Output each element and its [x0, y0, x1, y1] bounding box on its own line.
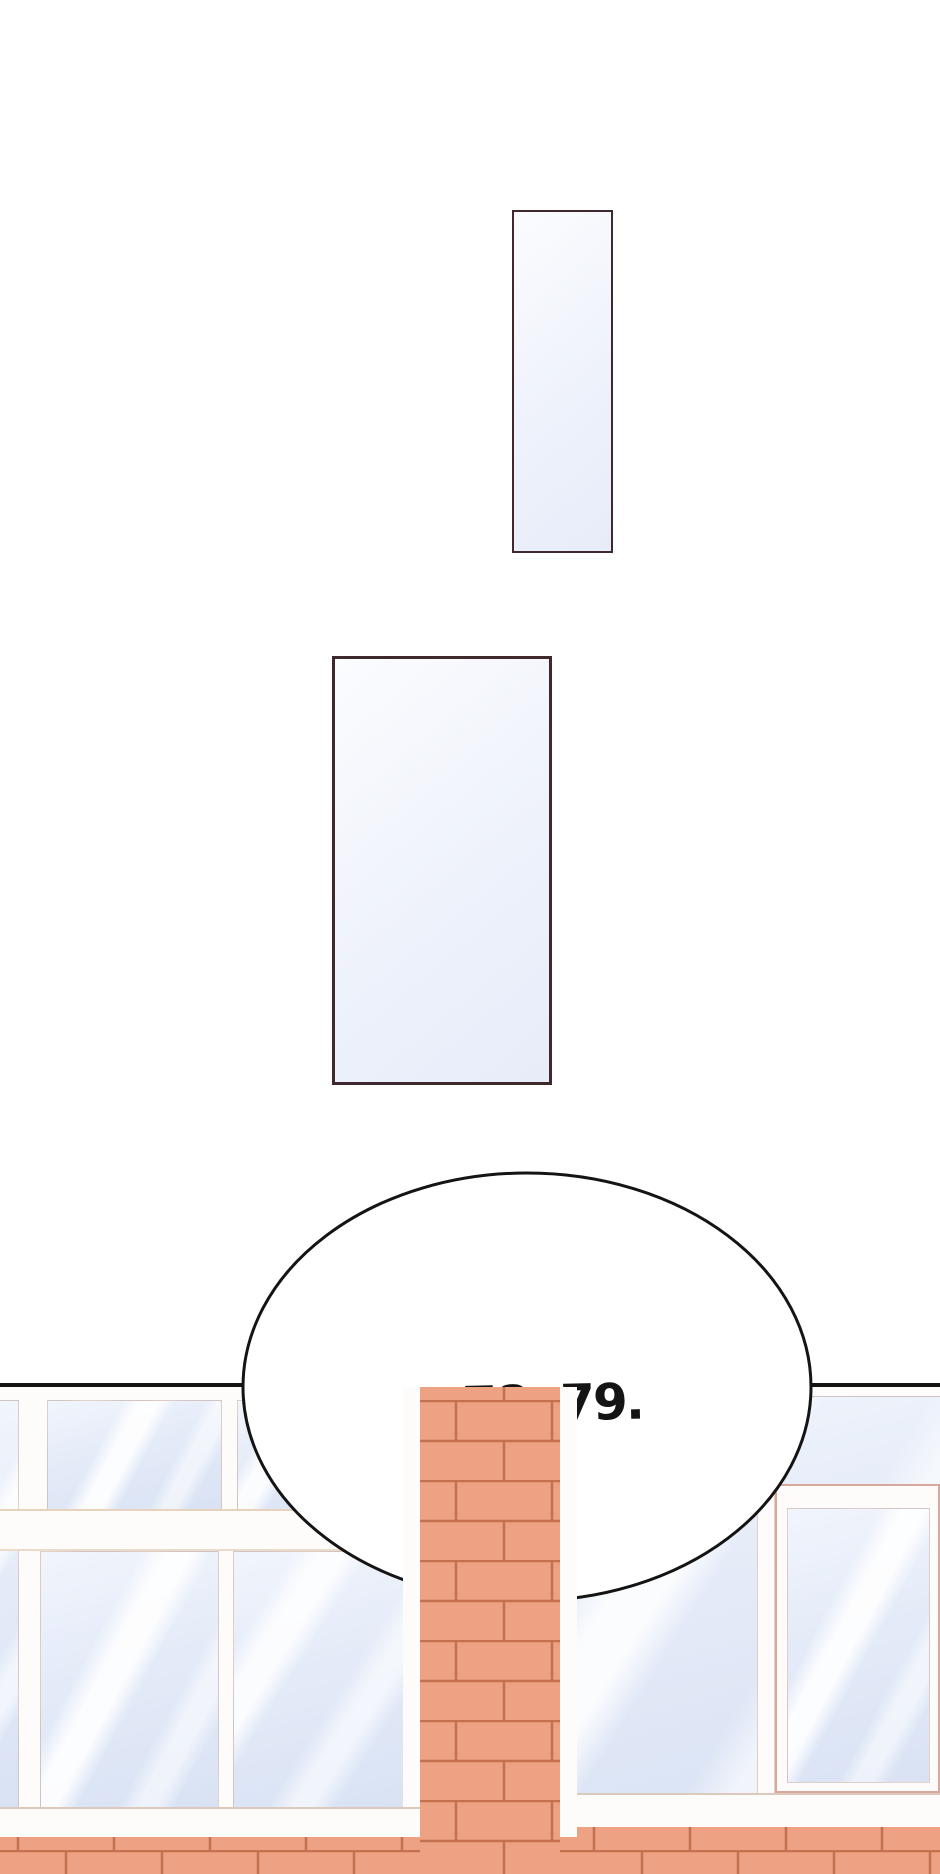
left-window-pane-upper-right — [237, 1400, 405, 1511]
right-window-post — [757, 1396, 775, 1793]
right-window-sill — [577, 1793, 940, 1827]
left-window-edge-pane — [0, 1400, 19, 1809]
scene-building — [0, 1383, 940, 1874]
pillar-bricks — [420, 1387, 560, 1874]
left-window-pane-lower-left — [40, 1551, 219, 1809]
left-window-pane-upper-left — [47, 1400, 222, 1511]
left-window-pane-lower-right — [233, 1551, 405, 1809]
right-window-inner-frame — [775, 1484, 940, 1793]
left-window-horizontal-mullion — [0, 1509, 403, 1551]
empty-panel-tall — [512, 210, 613, 553]
right-window — [577, 1387, 940, 1827]
comic-page: ...78, 79. — [0, 0, 940, 1874]
left-window — [0, 1387, 420, 1837]
pillar-bricks-rect — [420, 1387, 560, 1874]
right-window-inner-glass — [787, 1508, 930, 1783]
empty-panel-wide — [332, 656, 552, 1085]
brick-pillar — [403, 1387, 577, 1837]
left-window-sill — [0, 1807, 420, 1837]
